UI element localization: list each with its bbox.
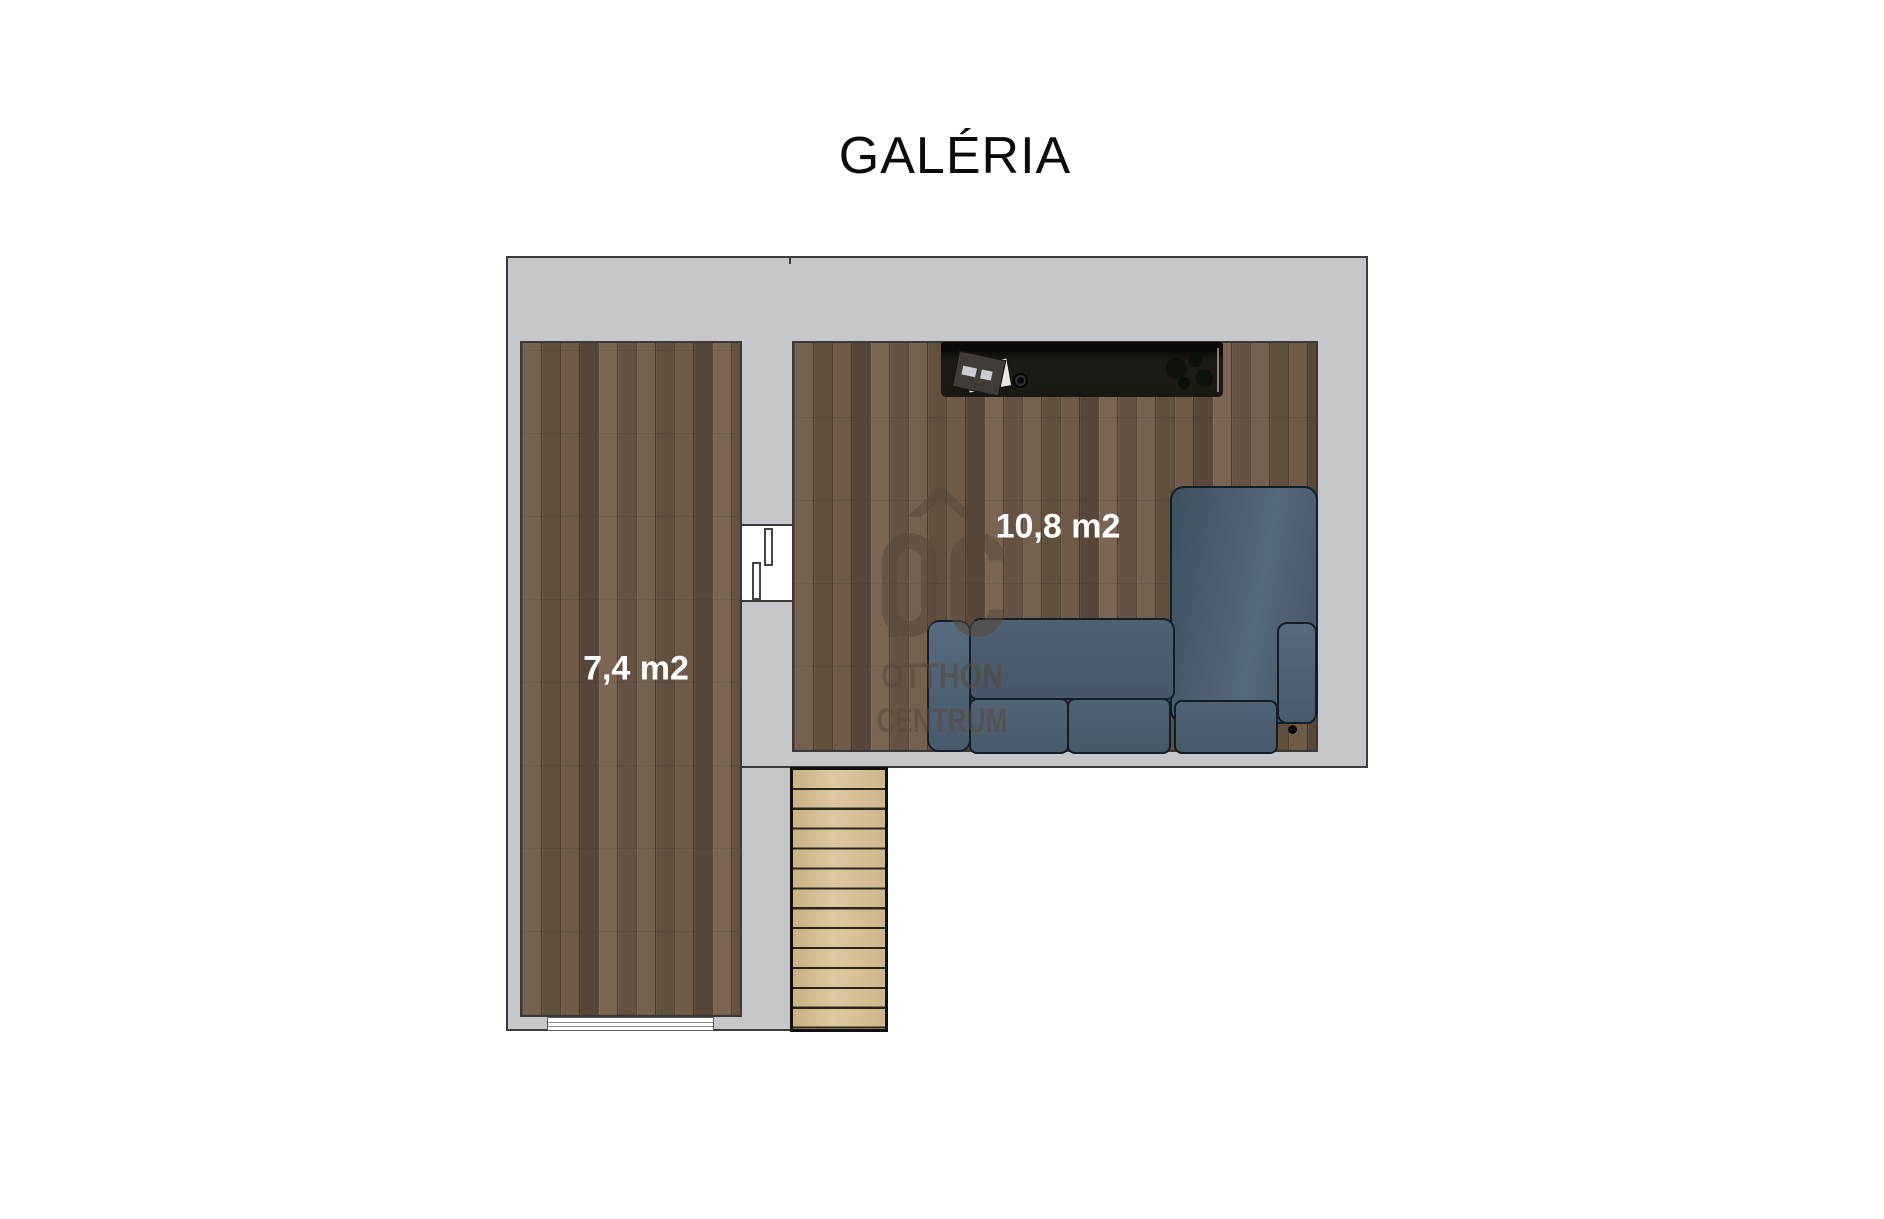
laptop-screen-part [980,370,993,381]
laptop-screen-part [961,366,977,378]
window-pane-line [548,1026,713,1027]
sofa-chaise-seat [1174,700,1278,754]
window-pane-line [548,1022,713,1023]
floor-plan [506,256,1368,1032]
wall-left [506,256,520,1031]
wall-top-band [506,256,1368,341]
cup-icon [1013,373,1028,388]
floor-plan-canvas: GALÉRIA [0,0,1884,1219]
plant-icon [1157,346,1221,396]
corner-sofa [927,486,1318,756]
sofa-back-cushion [969,618,1175,700]
wall-right [1318,256,1368,768]
desk-edge-highlight [1217,348,1219,392]
page-title: GALÉRIA [839,126,1071,186]
room-area-label-left: 7,4 m2 [583,650,689,689]
desk [941,342,1223,397]
staircase [790,767,888,1032]
sliding-door [742,524,792,602]
sofa-seat-cushion [1067,698,1171,754]
outline-left [506,256,508,1031]
door-leaf-icon [752,562,761,600]
wall-divider [742,341,792,1031]
outline-wall-joint [789,256,791,264]
window-symbol [547,1017,714,1031]
outline-right [1366,256,1368,768]
sofa-seat-cushion [969,698,1069,754]
sofa-left-armrest [927,620,971,752]
room-area-label-living: 10,8 m2 [996,508,1121,547]
sofa-right-armrest [1277,622,1317,724]
door-leaf-icon [764,528,773,566]
outline-top [506,256,1368,258]
laptop-icon [952,350,1007,396]
sofa-button-detail [1288,725,1297,734]
